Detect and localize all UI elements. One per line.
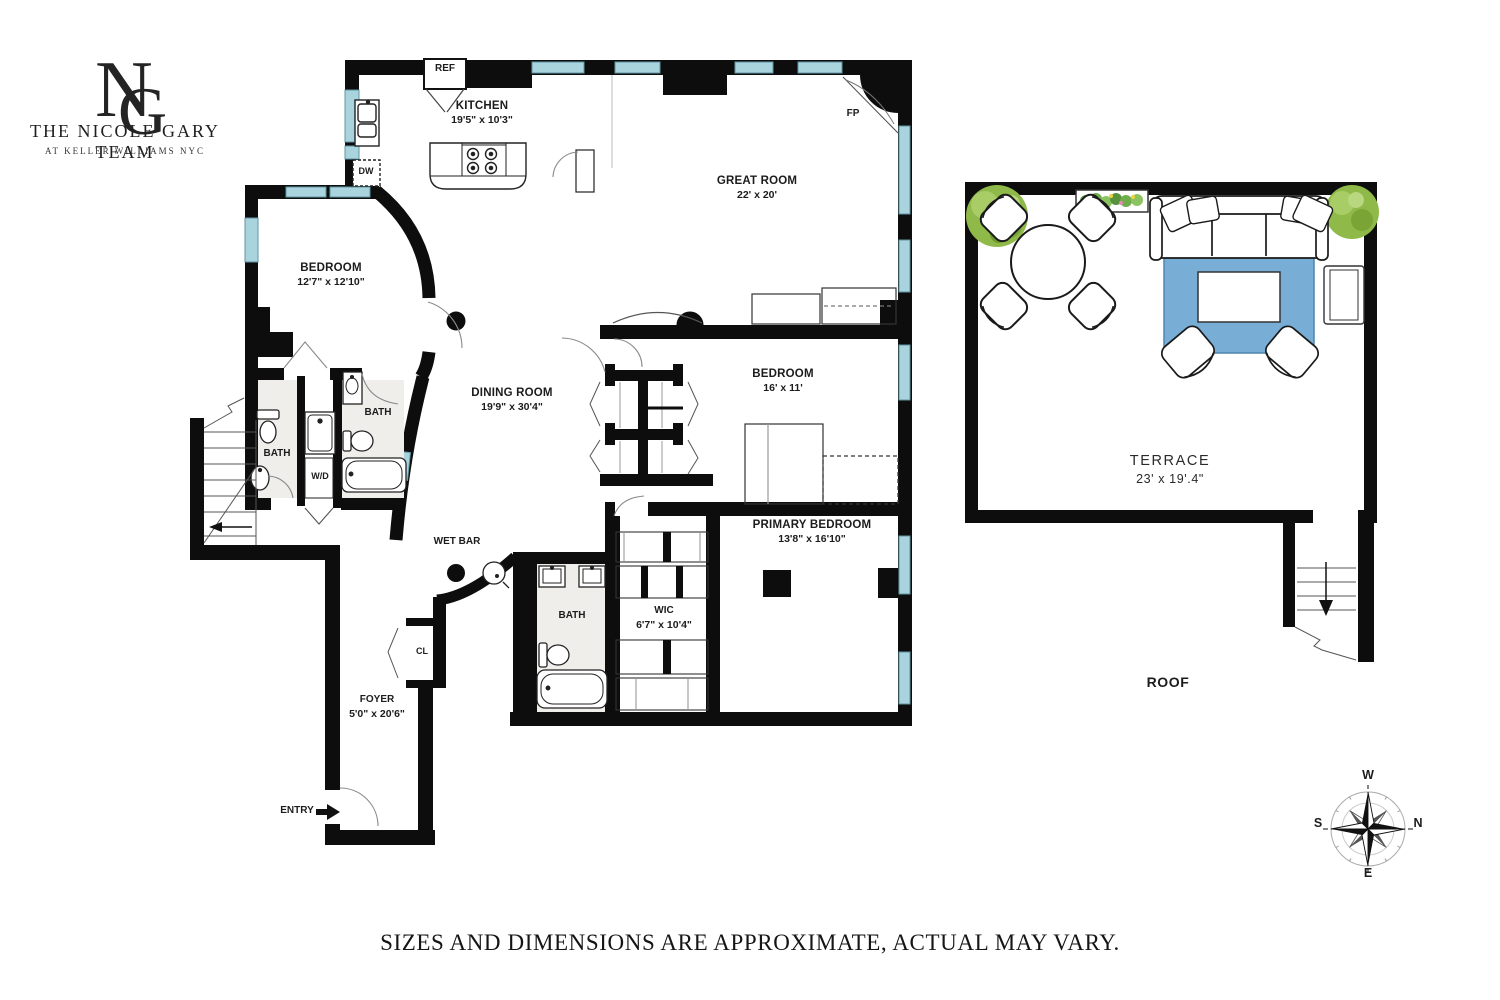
tree [1325, 185, 1379, 239]
column [763, 570, 791, 597]
roof-stairs [1295, 562, 1356, 660]
primary-bedroom-label: PRIMARY BEDROOM [753, 519, 872, 531]
coffee-table [1198, 272, 1280, 322]
dining-room-dims: 19'9" x 30'4" [481, 401, 543, 413]
cl-label: CL [416, 646, 428, 656]
bedroom-a-label: BEDROOM [300, 262, 361, 274]
great-room-label: GREAT ROOM [717, 175, 797, 187]
main-unit-walls [190, 60, 912, 845]
foyer-dims: 5'0" x 20'6" [349, 708, 405, 720]
primary-bedroom-dims: 13'8" x 16'10" [778, 533, 846, 545]
bedroom-a-dims: 12'7" x 12'10" [297, 276, 365, 288]
bath-c-fixtures [537, 564, 607, 712]
compass-rose [1323, 785, 1413, 873]
compass-south: S [1314, 816, 1322, 830]
floorplan-page: N G THE NICOLE GARY TEAM AT KELLER WILLI… [0, 0, 1500, 1000]
bath-b-label: BATH [364, 407, 391, 418]
wet-bar-label: WET BAR [434, 536, 481, 547]
bath-b-fixtures [342, 372, 406, 498]
dw-label: DW [359, 166, 374, 176]
fireplace [843, 75, 898, 133]
disclaimer-text: SIZES AND DIMENSIONS ARE APPROXIMATE, AC… [0, 930, 1500, 956]
logo-subtitle: AT KELLER WILLIAMS NYC [0, 146, 250, 156]
logo-team-name: THE NICOLE GARY TEAM [0, 121, 250, 163]
column [447, 312, 466, 331]
bath-c-label: BATH [558, 610, 585, 621]
entry-label: ENTRY [280, 805, 314, 816]
wic-label: WIC [654, 605, 673, 616]
compass-north: N [1413, 816, 1422, 830]
foyer-label: FOYER [360, 694, 394, 705]
terrace-dims: 23' x 19'.4" [1136, 472, 1204, 486]
roof-label: ROOF [1147, 674, 1190, 690]
bath-a-label: BATH [263, 448, 290, 459]
compass-west: W [1362, 768, 1374, 782]
bedroom-b-dims: 16' x 11' [763, 382, 802, 394]
great-room-dims: 22' x 20' [737, 189, 777, 201]
kitchen-label: KITCHEN [456, 100, 509, 112]
terrace-label: TERRACE [1130, 453, 1211, 469]
kitchen-dims: 19'5" x 10'3" [451, 114, 513, 126]
wic-dims: 6'7" x 10'4" [636, 619, 692, 631]
ref-label: REF [435, 63, 455, 74]
entry-arrow-icon [316, 804, 340, 820]
bedroom-b-label: BEDROOM [752, 368, 813, 380]
side-chair [1324, 266, 1364, 324]
fp-label: FP [847, 108, 860, 119]
bedroom-b-furniture [613, 288, 898, 504]
dining-room-label: DINING ROOM [471, 387, 552, 399]
compass-east: E [1364, 866, 1372, 880]
terrace-sofa [1150, 194, 1334, 260]
terrace-dining-set [976, 190, 1120, 334]
wd-label: W/D [311, 471, 329, 481]
